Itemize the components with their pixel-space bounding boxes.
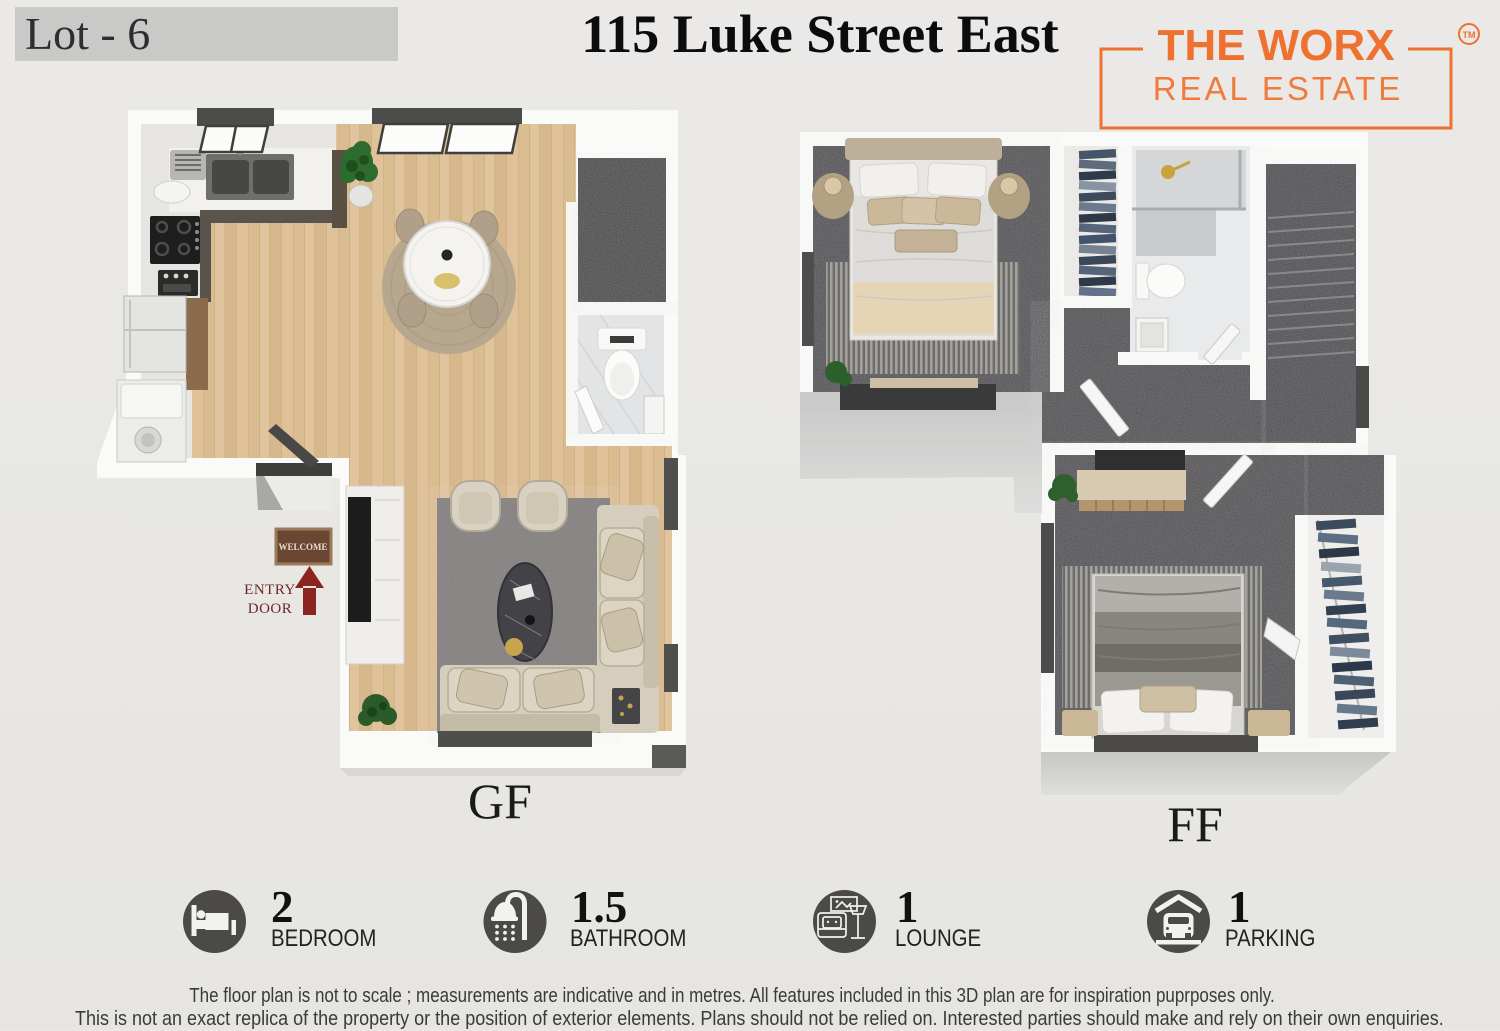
svg-text:WELCOME: WELCOME bbox=[278, 542, 327, 552]
svg-text:TM: TM bbox=[1463, 30, 1476, 40]
